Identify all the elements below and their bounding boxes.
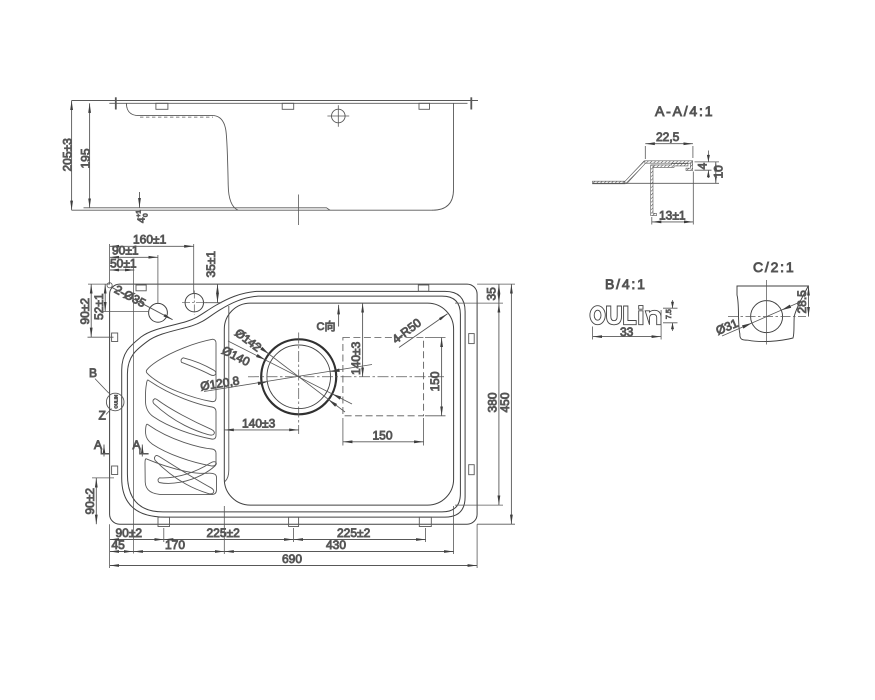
- svg-text:150: 150: [428, 371, 442, 391]
- svg-text:13±1: 13±1: [659, 209, 686, 223]
- svg-text:205±3: 205±3: [60, 138, 74, 172]
- svg-text:OULIN: OULIN: [114, 395, 119, 409]
- svg-text:35±1: 35±1: [204, 251, 218, 278]
- svg-text:4+10: 4+10: [136, 210, 150, 223]
- svg-text:Ø31: Ø31: [714, 316, 741, 338]
- svg-text:2-Ø35: 2-Ø35: [112, 282, 148, 310]
- svg-text:150: 150: [373, 429, 393, 443]
- svg-text:C向: C向: [317, 319, 336, 333]
- svg-text:Z: Z: [99, 409, 106, 423]
- svg-text:22,5: 22,5: [656, 130, 680, 144]
- svg-text:225±2: 225±2: [207, 526, 241, 540]
- svg-text:690: 690: [282, 552, 302, 566]
- svg-text:33: 33: [620, 325, 634, 339]
- svg-text:50±1: 50±1: [110, 256, 137, 270]
- svg-text:4: 4: [696, 163, 710, 170]
- svg-text:10: 10: [712, 165, 726, 179]
- svg-text:90±2: 90±2: [83, 488, 97, 515]
- svg-text:140±3: 140±3: [242, 417, 276, 431]
- svg-text:Ø120,8: Ø120,8: [199, 373, 240, 393]
- svg-text:28.5: 28.5: [795, 290, 809, 314]
- svg-text:B: B: [89, 366, 97, 380]
- svg-text:430: 430: [326, 538, 346, 552]
- svg-text:170: 170: [165, 538, 185, 552]
- svg-text:A-A/4:1: A-A/4:1: [655, 103, 714, 119]
- svg-text:C/2:1: C/2:1: [753, 259, 795, 275]
- svg-text:52±1: 52±1: [92, 293, 106, 320]
- svg-text:90±2: 90±2: [78, 298, 92, 325]
- svg-text:B/4:1: B/4:1: [605, 276, 647, 292]
- svg-text:450: 450: [498, 392, 512, 412]
- svg-text:195: 195: [78, 148, 92, 168]
- svg-text:45: 45: [112, 538, 126, 552]
- svg-text:7.5: 7.5: [666, 309, 673, 319]
- svg-text:35: 35: [485, 287, 499, 301]
- svg-text:140±3: 140±3: [349, 341, 363, 375]
